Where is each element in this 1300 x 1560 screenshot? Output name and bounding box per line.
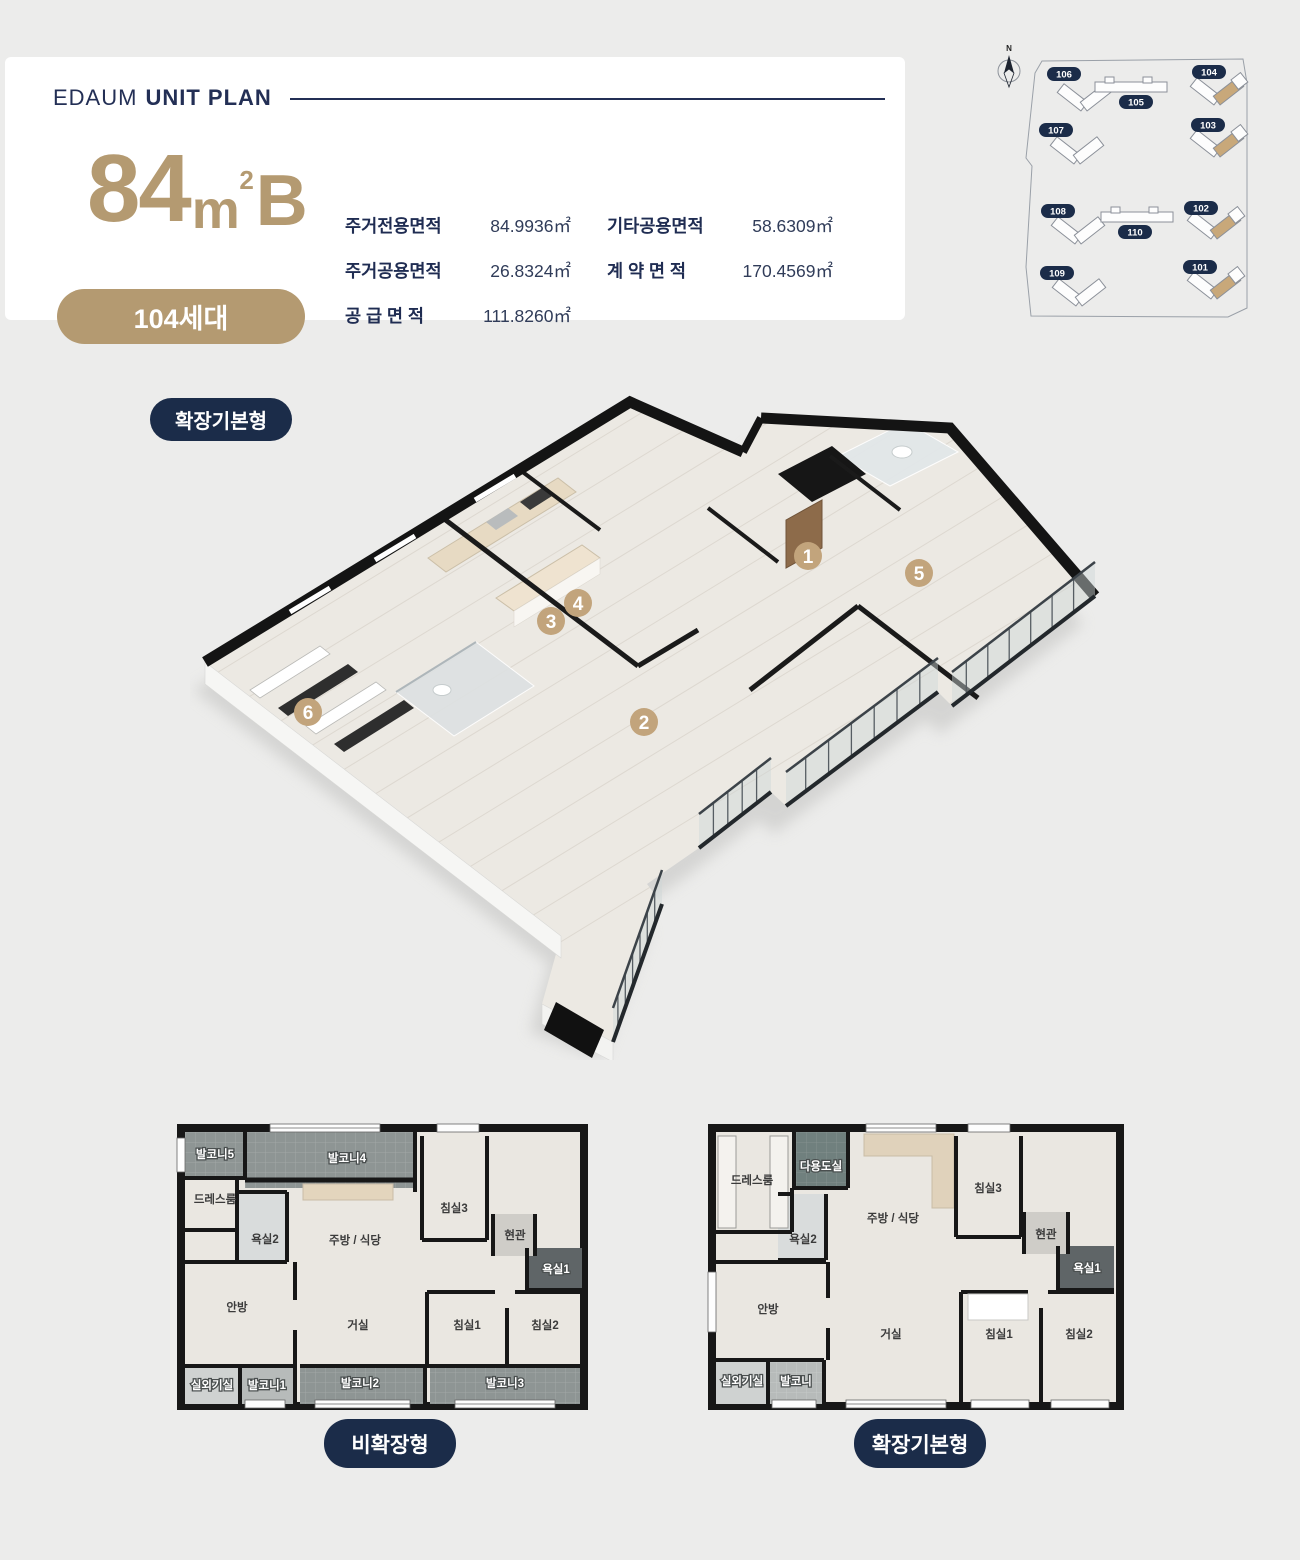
svg-text:1: 1 [803, 547, 814, 568]
unit-size: 84 m2 B [87, 141, 308, 237]
room-label: 안방 [226, 1300, 248, 1314]
building-101: 101 [1183, 260, 1245, 299]
area-label: 공 급 면 적 [345, 303, 424, 328]
marker-2: 2 [630, 708, 658, 736]
floor-plan-non-extended: 발코니5 발코니4 드레스룸 욕실2 주방 / 식당 침실3 현관 욕실1 안방… [175, 1122, 590, 1412]
room-label: 침실2 [531, 1318, 559, 1332]
site-map: N 106 105 104 [985, 35, 1265, 325]
area-value: 111.8260㎡ [483, 303, 571, 328]
building-110: 110 [1101, 207, 1173, 239]
marker-6: 6 [294, 698, 322, 726]
room-label: 발코니1 [248, 1378, 287, 1392]
marker-3: 3 [537, 607, 565, 635]
area-value: 58.6309㎡ [752, 213, 833, 238]
utility-area [794, 1132, 848, 1188]
building-badge: 109 [1049, 269, 1065, 280]
room-label: 실외기실 [191, 1378, 233, 1392]
area-table: 주거전용면적 84.9936㎡ 기타공용면적 58.6309㎡ 주거공용면적 2… [345, 203, 869, 338]
compass-icon: N [998, 44, 1020, 87]
room-label: 주방 / 식당 [329, 1233, 381, 1247]
room-label: 드레스룸 [731, 1173, 774, 1187]
floor-plan-extended: 드레스룸 다용도실 주방 / 식당 침실3 현관 욕실2 욕실1 안방 거실 침… [706, 1122, 1126, 1412]
room-label: 현관 [1035, 1227, 1057, 1241]
bed [968, 1294, 1028, 1320]
area-value: 170.4569㎡ [743, 258, 834, 283]
room-label: 욕실2 [251, 1232, 279, 1246]
room-label: 욕실2 [789, 1232, 817, 1246]
page-title: UNIT PLAN [145, 85, 271, 111]
unit-size-number: 84 [87, 141, 190, 237]
area-label: 계 약 면 적 [607, 258, 686, 283]
toilet [892, 446, 912, 458]
building-badge: 105 [1128, 98, 1145, 109]
marker-5: 5 [905, 559, 933, 587]
kitchen-counter [303, 1184, 393, 1200]
unit-size-unit: m2 [192, 183, 240, 237]
building-badge: 101 [1192, 263, 1209, 274]
bath2-area [237, 1192, 287, 1260]
room-label: 침실1 [453, 1318, 481, 1332]
marker-1: 1 [794, 542, 822, 570]
svg-text:3: 3 [546, 612, 557, 633]
building-107: 107 [1039, 123, 1104, 164]
area-row: 기타공용면적 58.6309㎡ [607, 203, 869, 248]
building-badge: 104 [1201, 68, 1218, 79]
room-label: 침실3 [440, 1201, 468, 1215]
households-badge: 104세대 [57, 289, 305, 344]
unit-size-superscript: 2 [239, 167, 253, 193]
room-label: 발코니4 [328, 1151, 367, 1165]
header-rule [290, 98, 885, 100]
building-badge: 102 [1193, 204, 1209, 215]
area-row: 계 약 면 적 170.4569㎡ [607, 248, 869, 293]
building-108: 108 [1041, 204, 1105, 244]
room-label: 침실3 [974, 1181, 1002, 1195]
room-label: 다용도실 [800, 1159, 842, 1173]
isometric-floor-plan: 1 2 3 4 5 6 [190, 390, 1110, 1060]
area-value: 84.9936㎡ [490, 213, 571, 238]
unit-info-card: EDAUM UNIT PLAN 84 m2 B 104세대 주거전용면적 84.… [5, 57, 905, 320]
building-badge: 107 [1048, 126, 1064, 137]
area-label: 주거공용면적 [345, 258, 442, 283]
room-label: 드레스룸 [194, 1192, 237, 1206]
building-badge: 106 [1056, 70, 1072, 81]
area-row: 공 급 면 적 111.8260㎡ [345, 293, 607, 338]
area-row: 주거전용면적 84.9936㎡ [345, 203, 607, 248]
brand-text: EDAUM [53, 85, 137, 111]
room-label: 발코니2 [341, 1376, 379, 1390]
unit-size-suffix: B [256, 165, 308, 237]
building-103: 103 [1190, 118, 1248, 157]
unit-plan-page: EDAUM UNIT PLAN 84 m2 B 104세대 주거전용면적 84.… [0, 0, 1300, 1560]
room-label: 침실2 [1065, 1327, 1093, 1341]
room-label: 안방 [757, 1302, 779, 1316]
room-label: 침실1 [985, 1327, 1013, 1341]
card-header: EDAUM UNIT PLAN [53, 85, 885, 111]
room-label: 거실 [347, 1318, 368, 1332]
area-value: 26.8324㎡ [490, 258, 571, 283]
marker-4: 4 [564, 589, 592, 617]
toilet [433, 685, 451, 696]
room-label: 욕실1 [1073, 1261, 1101, 1275]
caption-non-extended: 비확장형 [324, 1419, 456, 1468]
room-label: 현관 [504, 1228, 526, 1242]
area-label: 주거전용면적 [345, 213, 442, 238]
svg-text:6: 6 [303, 703, 314, 724]
building-badge: 110 [1127, 228, 1142, 239]
room-label: 발코니5 [196, 1147, 235, 1161]
room-label: 발코니 [780, 1374, 812, 1388]
room-label: 주방 / 식당 [867, 1211, 919, 1225]
area-row: 주거공용면적 26.8324㎡ [345, 248, 607, 293]
room-label: 거실 [880, 1327, 901, 1341]
building-109: 109 [1040, 266, 1106, 306]
svg-text:5: 5 [914, 564, 925, 585]
room-label: 발코니3 [486, 1376, 524, 1390]
caption-extended: 확장기본형 [854, 1419, 986, 1468]
compass-north-label: N [1006, 44, 1012, 53]
building-102: 102 [1184, 201, 1245, 239]
svg-text:2: 2 [639, 713, 650, 734]
building-badge: 103 [1200, 121, 1216, 132]
area-label: 기타공용면적 [607, 213, 704, 238]
building-104: 104 [1190, 65, 1248, 105]
building-badge: 108 [1050, 207, 1066, 218]
room-label: 실외기실 [721, 1374, 763, 1388]
room-label: 욕실1 [542, 1262, 570, 1276]
svg-text:4: 4 [573, 594, 584, 615]
